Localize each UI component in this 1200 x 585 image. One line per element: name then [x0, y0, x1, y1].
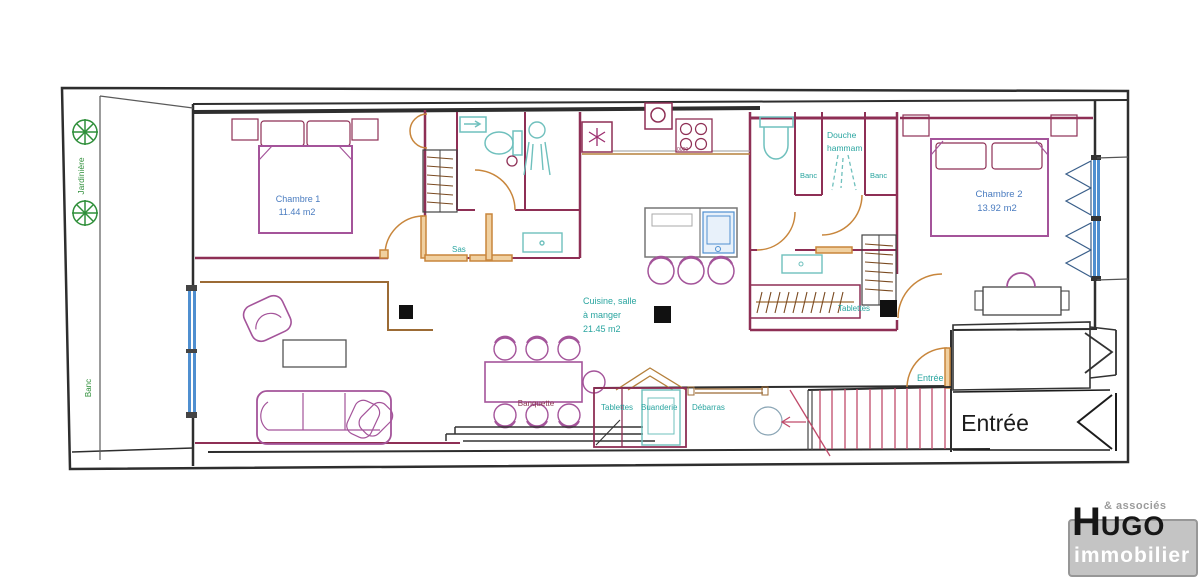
armchair — [240, 292, 294, 344]
label-chambre1-area: 11.44 m2 — [279, 207, 316, 217]
stove-marking: 0000 — [677, 147, 688, 153]
toilet-wc2 — [760, 117, 793, 159]
label-cuisine-1: Cuisine, salle — [583, 296, 637, 306]
floor-plan-page: 0000 — [0, 0, 1200, 585]
dining-table — [485, 337, 605, 428]
door-knob-icon — [507, 156, 517, 166]
label-buanderie: Buanderie — [641, 403, 678, 412]
label-chambre2: Chambre 2 — [976, 189, 1023, 200]
fridge-icon — [582, 122, 612, 152]
logo-name-rest: UGO — [1101, 513, 1166, 540]
bar-stools — [648, 257, 734, 284]
label-banc-right: Banc — [870, 171, 887, 180]
floor-plan-svg: 0000 — [0, 0, 1200, 585]
hood-icon — [645, 103, 672, 129]
label-sas: Sas — [452, 245, 466, 254]
window-left — [186, 285, 197, 418]
shower-person-icon — [524, 122, 550, 175]
label-cuisine-area: 21.45 m2 — [583, 324, 621, 334]
logo-subtitle: immobilier — [1074, 544, 1190, 568]
column-kitchen — [654, 306, 671, 323]
cabinet-sas — [523, 233, 562, 252]
label-jardiniere: Jardinière — [76, 157, 86, 195]
half-wall-kitchen — [200, 282, 433, 330]
label-tablettes-dressing: Tablettes — [838, 304, 870, 313]
hammam-person-icon — [832, 155, 856, 190]
label-entree-hall: Entrée — [961, 410, 1029, 436]
label-douche-2: hammam — [827, 143, 862, 153]
sofa — [257, 391, 396, 444]
logo-name-initial: H — [1072, 502, 1101, 542]
banquette-bench — [446, 427, 655, 441]
logo-name: H UGO — [1072, 502, 1165, 542]
label-douche-1: Douche — [827, 130, 857, 140]
coffee-table — [283, 340, 346, 367]
label-chambre2-area: 13.92 m2 — [977, 203, 1017, 214]
label-entree-door: Entrée — [917, 373, 944, 383]
column-living — [399, 305, 413, 319]
stairs — [782, 387, 951, 456]
label-banc-left: Banc — [800, 171, 817, 180]
toilet-sas — [460, 117, 522, 155]
bed-chambre2 — [903, 115, 1077, 236]
label-debarras: Débarras — [692, 403, 725, 412]
label-banc-terrace: Banc — [84, 379, 93, 397]
agency-logo: & associés H UGO immobilier — [1058, 494, 1198, 580]
windows-right — [1066, 155, 1128, 281]
label-chambre1: Chambre 1 — [276, 194, 321, 204]
desk-chambre2 — [975, 273, 1069, 315]
label-cuisine-2: à manger — [583, 310, 621, 320]
column-dressing — [880, 300, 897, 317]
label-tablettes-buanderie: Tablettes — [601, 403, 633, 412]
terrace-lines — [100, 96, 193, 460]
kitchen-island — [645, 208, 737, 257]
interior-walls — [195, 110, 1093, 443]
entrance-upper-band — [953, 322, 1116, 390]
wardrobe-chambre1 — [423, 150, 457, 212]
label-banquette: Banquette — [518, 399, 555, 408]
